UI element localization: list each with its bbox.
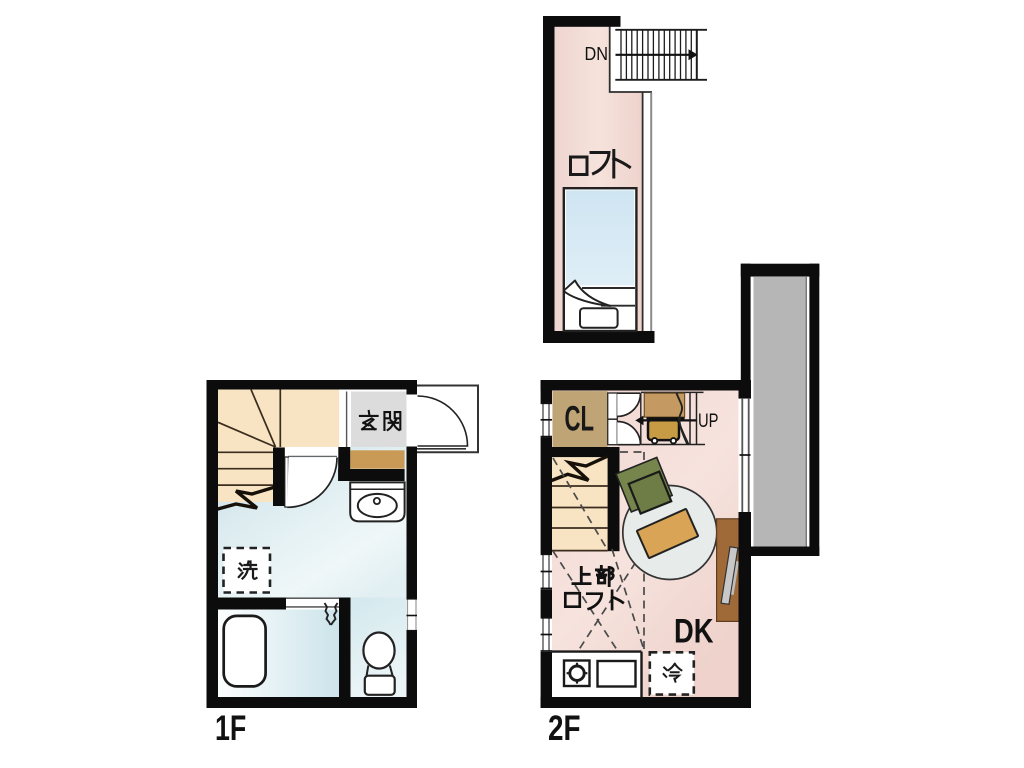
svg-text:UP: UP — [698, 411, 719, 432]
svg-text:DK: DK — [674, 613, 714, 651]
svg-text:DN: DN — [585, 43, 609, 64]
svg-text:2F: 2F — [548, 708, 581, 748]
svg-text:1F: 1F — [215, 708, 246, 748]
svg-text:CL: CL — [565, 398, 595, 438]
